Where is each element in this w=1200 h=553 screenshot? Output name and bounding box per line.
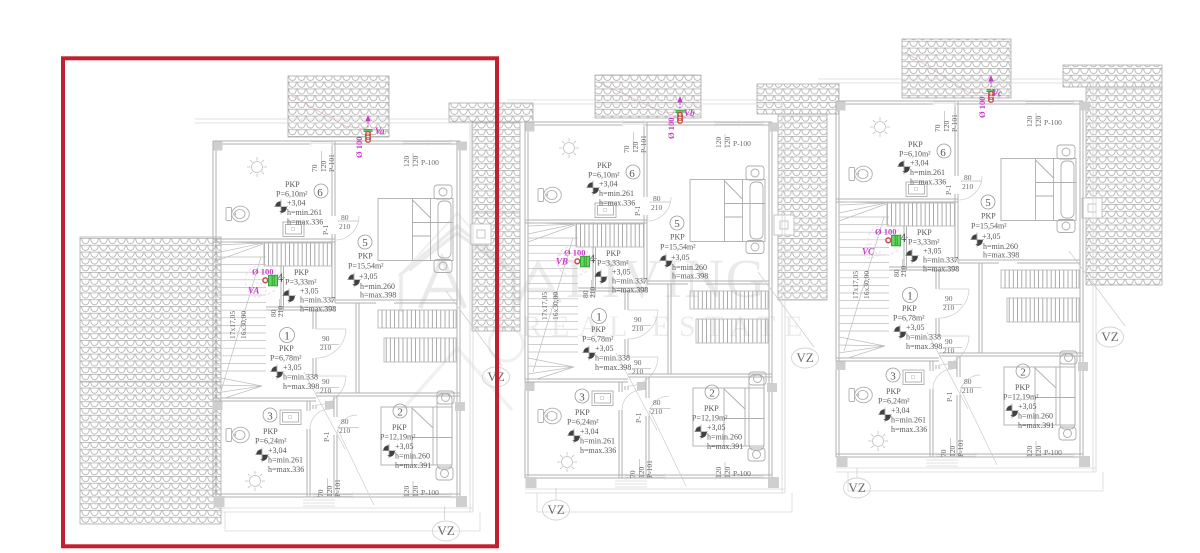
svg-text:VB: VB: [556, 257, 568, 267]
svg-text:VC: VC: [862, 247, 875, 257]
svg-text:VZ: VZ: [796, 350, 813, 365]
svg-text:VZ: VZ: [848, 480, 865, 495]
svg-text:VA: VA: [248, 286, 259, 296]
svg-text:VZ: VZ: [1101, 329, 1118, 344]
svg-text:Va: Va: [375, 126, 385, 136]
svg-text:Vb: Vb: [684, 108, 695, 118]
svg-text:VZ: VZ: [437, 523, 454, 538]
svg-text:VZ: VZ: [547, 502, 564, 517]
svg-text:Vc: Vc: [992, 88, 1002, 98]
